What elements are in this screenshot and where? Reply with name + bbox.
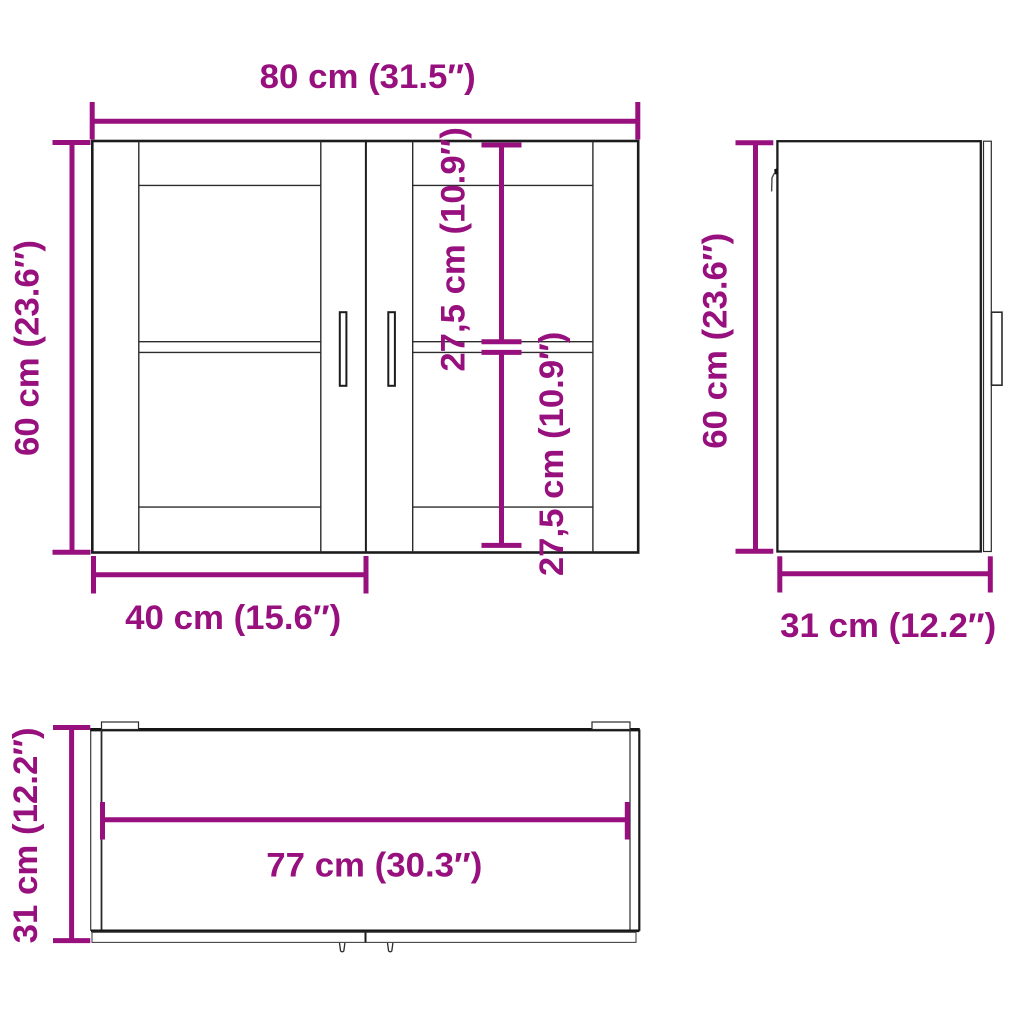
svg-text:27,5 cm (10.9″): 27,5 cm (10.9″) [533, 332, 571, 577]
svg-text:27,5 cm (10.9″): 27,5 cm (10.9″) [434, 127, 472, 372]
svg-text:60 cm (23.6″): 60 cm (23.6″) [9, 240, 47, 456]
svg-text:31 cm (12.2″): 31 cm (12.2″) [780, 607, 996, 645]
svg-text:40 cm (15.6″): 40 cm (15.6″) [125, 599, 341, 637]
svg-text:77 cm (30.3″): 77 cm (30.3″) [266, 847, 482, 885]
svg-text:60 cm (23.6″): 60 cm (23.6″) [696, 233, 734, 449]
svg-text:31 cm (12.2″): 31 cm (12.2″) [7, 727, 45, 943]
svg-text:80 cm (31.5″): 80 cm (31.5″) [260, 58, 476, 96]
